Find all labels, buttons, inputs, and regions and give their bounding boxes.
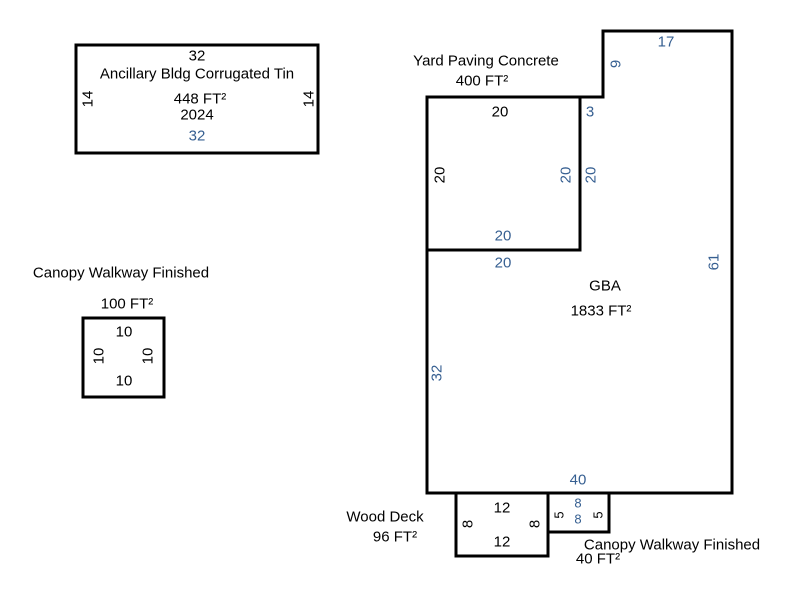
ancillary-year: 2024 (180, 108, 213, 123)
canopy-right-dim-bottom: 8 (574, 513, 581, 526)
canopy-left-dim-bottom: 10 (116, 374, 133, 389)
ancillary-dim-top: 32 (189, 49, 206, 64)
wood-deck-dim-right: 8 (528, 520, 543, 528)
ancillary-area: 448 FT² (174, 92, 227, 107)
ancillary-dim-left: 14 (81, 91, 96, 108)
canopy-left-area: 100 FT² (101, 297, 154, 312)
wood-deck-dim-left: 8 (461, 520, 476, 528)
wood-deck-dim-bottom: 12 (494, 535, 511, 550)
sketch-canvas: 32 Ancillary Bldg Corrugated Tin 14 448 … (0, 0, 800, 600)
yard-paving-dim-top: 20 (492, 105, 509, 120)
ancillary-dim-right: 14 (302, 91, 317, 108)
canopy-left-dim-right: 10 (141, 348, 156, 365)
yard-paving-dim-right-outer: 20 (584, 167, 599, 184)
gba-dim-step: 3 (586, 105, 594, 120)
ancillary-title: Ancillary Bldg Corrugated Tin (100, 67, 294, 82)
gba-dim-left: 32 (430, 365, 445, 382)
yard-paving-dim-bottom-outer: 20 (495, 256, 512, 271)
canopy-right-dim-right: 5 (592, 511, 605, 518)
gba-dim-top: 17 (658, 35, 675, 50)
yard-paving-dim-bottom-inner: 20 (495, 229, 512, 244)
wood-deck-dim-top: 12 (494, 501, 511, 516)
canopy-left-dim-left: 10 (92, 348, 107, 365)
wood-deck-area: 96 FT² (373, 530, 417, 545)
canopy-left-title: Canopy Walkway Finished (33, 266, 209, 281)
yard-paving-area: 400 FT² (456, 74, 509, 89)
gba-title: GBA (589, 279, 621, 294)
yard-paving-dim-left: 20 (433, 167, 448, 184)
gba-area: 1833 FT² (571, 304, 632, 319)
yard-paving-title: Yard Paving Concrete (413, 54, 559, 69)
gba-dim-right: 61 (707, 254, 722, 271)
canopy-right-dim-top: 8 (574, 497, 581, 510)
canopy-left-dim-top: 10 (116, 325, 133, 340)
canopy-right-dim-left: 5 (553, 511, 566, 518)
gba-dim-upper-left: 9 (609, 60, 624, 68)
gba-dim-bottom: 40 (570, 473, 587, 488)
canopy-right-area: 40 FT² (576, 552, 620, 567)
yard-paving-dim-right-inner: 20 (559, 167, 574, 184)
ancillary-dim-bottom: 32 (189, 129, 206, 144)
wood-deck-title: Wood Deck (346, 510, 423, 525)
